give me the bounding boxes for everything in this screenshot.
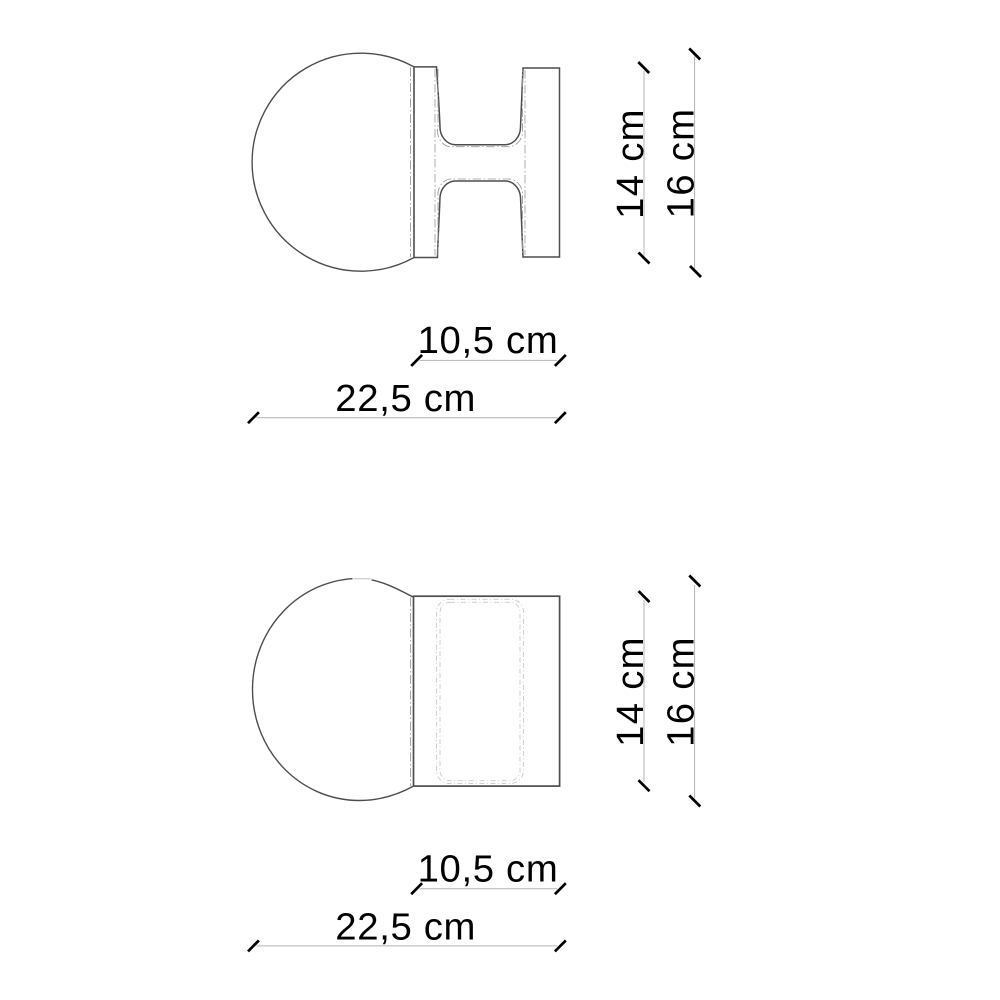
svg-text:14 cm: 14 cm xyxy=(609,636,652,747)
svg-text:10,5 cm: 10,5 cm xyxy=(418,319,559,362)
svg-text:16 cm: 16 cm xyxy=(659,636,702,747)
svg-text:14 cm: 14 cm xyxy=(609,108,652,219)
svg-text:10,5 cm: 10,5 cm xyxy=(418,847,559,890)
svg-text:16 cm: 16 cm xyxy=(659,108,702,219)
svg-text:22,5 cm: 22,5 cm xyxy=(335,377,476,420)
svg-text:22,5 cm: 22,5 cm xyxy=(335,905,476,948)
